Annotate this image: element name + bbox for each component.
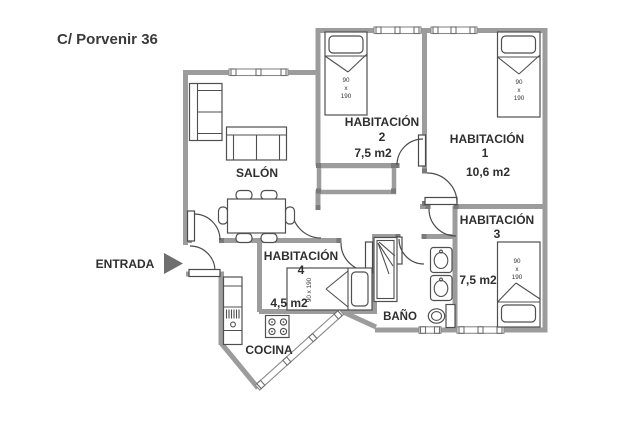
svg-text:190: 190 bbox=[514, 95, 525, 102]
hab2-door bbox=[397, 135, 426, 166]
hab1-area: 10,6 m2 bbox=[466, 165, 510, 179]
hab2-area: 7,5 m2 bbox=[354, 146, 392, 160]
room-hab4: 90 x 190 HABITACIÓN 4 4,5 m2 bbox=[264, 248, 372, 310]
svg-text:190: 190 bbox=[512, 274, 523, 281]
bath-window bbox=[419, 327, 441, 334]
hab3-area: 7,5 m2 bbox=[459, 273, 497, 287]
svg-text:190: 190 bbox=[341, 93, 352, 100]
kitchen-counter-icon bbox=[224, 277, 243, 345]
chair-icon bbox=[236, 234, 252, 243]
room-salon: SALÓN bbox=[190, 84, 295, 243]
hab1-window bbox=[431, 27, 477, 34]
svg-text:90: 90 bbox=[513, 258, 521, 265]
hab3-label: HABITACIÓN bbox=[460, 212, 534, 227]
sofa-icon bbox=[190, 84, 223, 141]
room-hab2: 90 x 190 HABITACIÓN 2 7,5 m2 bbox=[325, 32, 419, 160]
hab4-number: 4 bbox=[298, 263, 305, 277]
hab2-window bbox=[374, 27, 421, 34]
chair-icon bbox=[261, 191, 277, 200]
bath-label: BAÑO bbox=[383, 310, 417, 323]
entrance: ENTRADA bbox=[96, 253, 183, 274]
floor-plan: C/ Porvenir 36 bbox=[0, 0, 640, 425]
hab2-label: HABITACIÓN bbox=[345, 114, 419, 129]
pillow-icon bbox=[502, 36, 536, 53]
room-hab3: 90 x 190 HABITACIÓN 3 7,5 m2 bbox=[459, 212, 540, 327]
stove-icon bbox=[266, 316, 290, 338]
chair-icon bbox=[286, 207, 295, 224]
hab3-number: 3 bbox=[494, 227, 501, 241]
pillow-icon bbox=[329, 36, 363, 53]
bed-icon: 90 x 190 bbox=[498, 242, 541, 327]
page-title: C/ Porvenir 36 bbox=[57, 31, 158, 48]
salon-label: SALÓN bbox=[236, 165, 278, 180]
hab3-window bbox=[457, 327, 504, 334]
svg-text:90: 90 bbox=[342, 77, 350, 84]
sofa-icon bbox=[227, 127, 287, 160]
sink-icon bbox=[431, 248, 453, 273]
chair-icon bbox=[261, 234, 277, 243]
bed-icon: 90 x 190 bbox=[325, 32, 367, 115]
toilet-icon bbox=[428, 305, 455, 328]
hab1-door bbox=[425, 173, 457, 205]
hab4-label: HABITACIÓN bbox=[264, 248, 338, 263]
hab1-label: HABITACIÓN bbox=[450, 131, 524, 146]
bath-door bbox=[396, 237, 424, 264]
dining-table-icon bbox=[219, 191, 295, 243]
svg-text:90: 90 bbox=[515, 79, 523, 86]
entrance-door bbox=[189, 246, 220, 277]
shower-icon bbox=[374, 238, 397, 302]
bed-icon: 90 x 190 bbox=[498, 32, 541, 117]
room-bath: BAÑO bbox=[374, 238, 455, 328]
entrance-label: ENTRADA bbox=[96, 257, 155, 271]
hab3-door bbox=[429, 209, 456, 236]
chair-icon bbox=[236, 191, 252, 200]
chair-icon bbox=[219, 207, 228, 224]
sink-icon bbox=[431, 276, 453, 301]
hall-closet bbox=[319, 166, 394, 192]
hab1-number: 1 bbox=[482, 146, 489, 160]
hab4-area: 4,5 m2 bbox=[270, 296, 308, 310]
salon-hall-door bbox=[292, 209, 321, 238]
room-hab1: 90 x 190 HABITACIÓN 1 10,6 m2 bbox=[450, 32, 540, 179]
entrance-arrow-icon bbox=[164, 253, 183, 274]
salon-window bbox=[229, 69, 288, 76]
kitchen-label: COCINA bbox=[245, 343, 293, 357]
pillow-icon bbox=[352, 272, 369, 306]
pillow-icon bbox=[502, 305, 536, 322]
vestibule-salon-door bbox=[188, 211, 221, 241]
hab2-number: 2 bbox=[379, 130, 386, 144]
